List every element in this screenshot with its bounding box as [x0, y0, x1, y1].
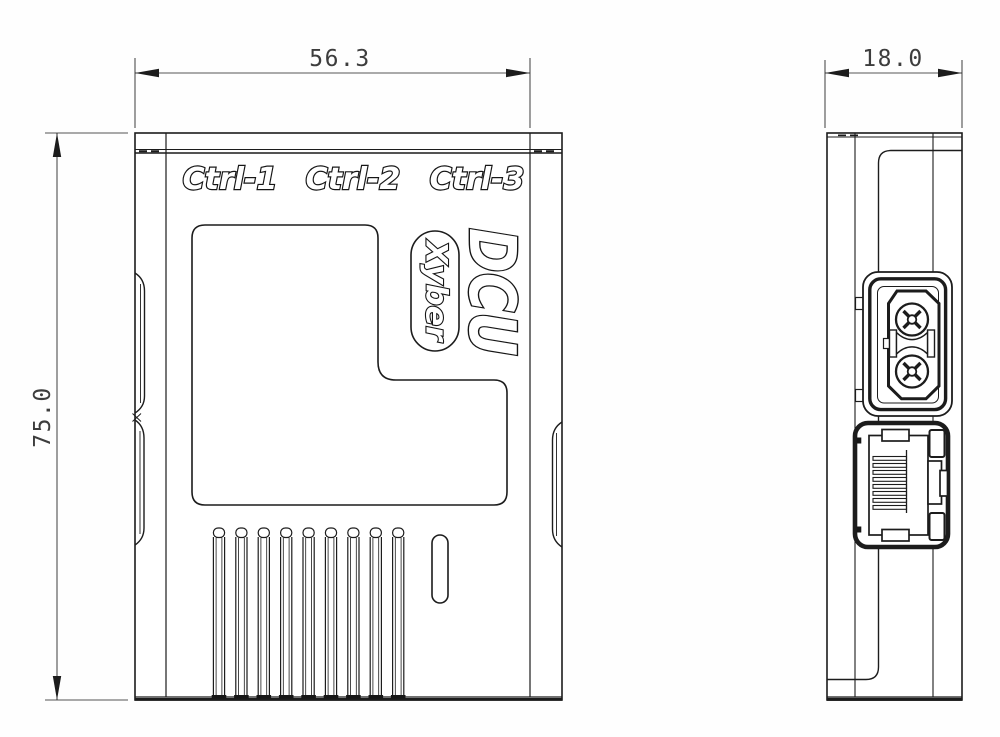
rj45-pin	[873, 492, 907, 496]
rj45-pin	[873, 464, 907, 468]
rj45-pin	[873, 499, 907, 503]
vent-rib-foot	[369, 695, 384, 699]
dcu-dimension-drawing: Ctrl-1 Ctrl-2 Ctrl-3 DCU Xyber	[0, 0, 1000, 737]
port-label-ctrl-2: Ctrl-2	[306, 162, 401, 197]
vent-rib-foot	[324, 695, 339, 699]
rj45-pin	[873, 478, 907, 482]
vent-rib-cap	[258, 528, 269, 538]
product-logo-dcu: DCU	[454, 228, 528, 356]
vent-rib-cap	[236, 528, 247, 538]
dim-arrow-right	[938, 69, 962, 77]
vent-rib-foot	[346, 695, 361, 699]
rj45-tab-mark-bottom	[857, 527, 862, 533]
vent-rib-foot	[234, 695, 249, 699]
vent-rib-foot	[212, 695, 227, 699]
front-height-value: 75.0	[30, 386, 56, 447]
front-width-value: 56.3	[309, 46, 370, 72]
dim-arrow-top	[53, 133, 61, 157]
rj45-pin	[873, 506, 907, 510]
power-terminal-1	[896, 304, 928, 336]
vent-rib-cap	[281, 528, 292, 538]
dim-arrow-bottom	[53, 676, 61, 700]
dimension-side-width: 18.0	[825, 46, 962, 128]
dim-arrow-right	[506, 69, 530, 77]
vent-rib-cap	[213, 528, 224, 538]
vent-rib-foot	[257, 695, 272, 699]
front-body-outline	[135, 133, 562, 700]
side-width-value: 18.0	[862, 46, 923, 72]
power-terminal-2	[896, 356, 928, 388]
power-connector	[856, 272, 953, 416]
dimension-front-height: 75.0	[30, 133, 128, 700]
rj45-pin	[873, 485, 907, 489]
vent-rib-cap	[303, 528, 314, 538]
vent-rib-cap	[348, 528, 359, 538]
front-view: Ctrl-1 Ctrl-2 Ctrl-3 DCU Xyber	[133, 133, 563, 700]
port-label-ctrl-1: Ctrl-1	[183, 162, 278, 197]
vent-rib-foot	[391, 695, 406, 699]
vent-rib-cap	[325, 528, 336, 538]
vent-rib-foot	[301, 695, 316, 699]
rj45-tab-mark-top	[857, 438, 862, 444]
vent-rib-cap	[370, 528, 381, 538]
technical-drawing-page: Ctrl-1 Ctrl-2 Ctrl-3 DCU Xyber	[0, 0, 1000, 737]
dim-arrow-left	[825, 69, 849, 77]
dim-arrow-left	[135, 69, 159, 77]
side-view	[827, 133, 962, 700]
port-label-ctrl-3: Ctrl-3	[430, 162, 525, 197]
rj45-pin	[873, 471, 907, 475]
rj45-pin	[873, 457, 907, 461]
brand-logo-xyber: Xyber	[420, 239, 454, 343]
vent-rib-foot	[279, 695, 294, 699]
dimension-front-width: 56.3	[135, 46, 530, 128]
vent-rib-cap	[393, 528, 404, 538]
rj45-connector	[855, 423, 948, 547]
